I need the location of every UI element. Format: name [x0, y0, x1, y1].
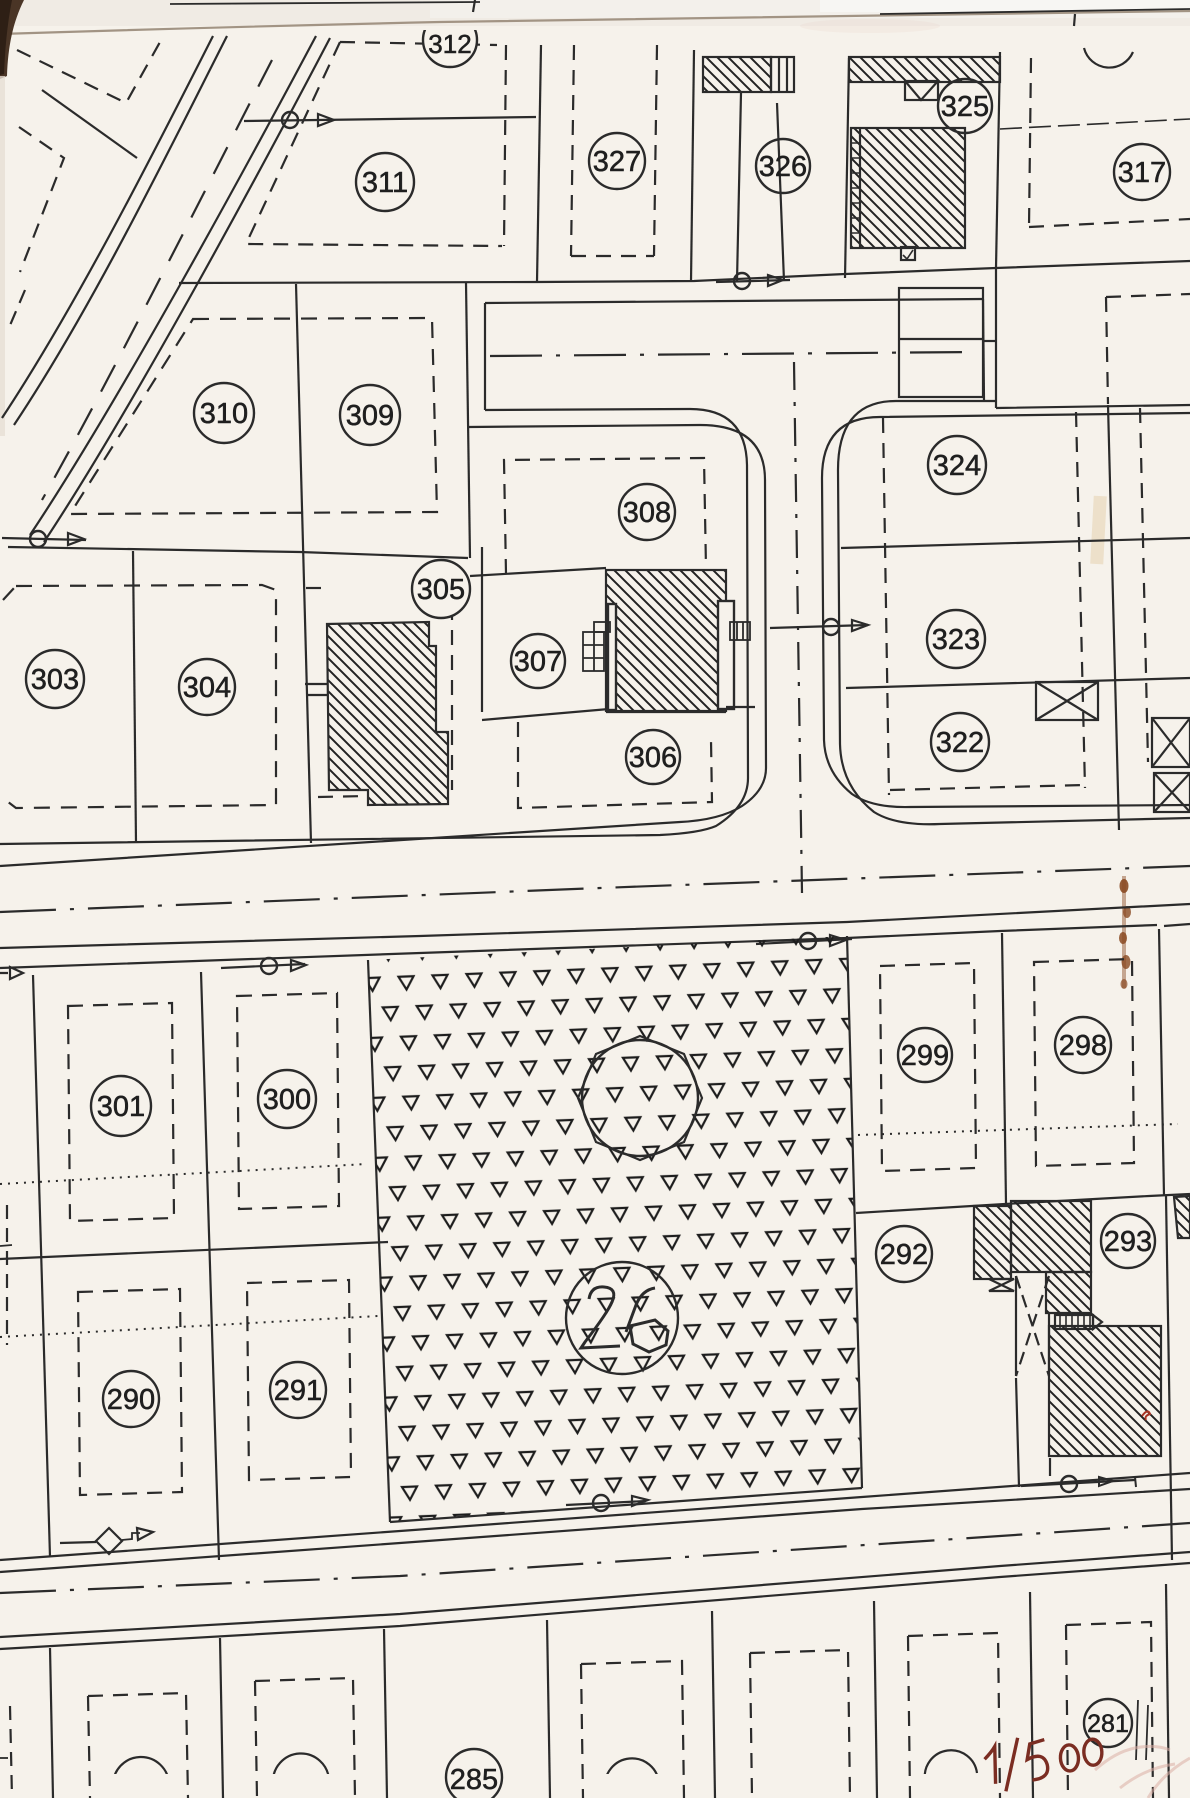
svg-text:308: 308 [623, 497, 671, 529]
svg-text:317: 317 [1118, 157, 1166, 189]
svg-text:325: 325 [941, 91, 989, 123]
svg-text:306: 306 [629, 742, 677, 774]
svg-text:292: 292 [880, 1239, 928, 1271]
svg-text:324: 324 [933, 450, 981, 482]
svg-text:298: 298 [1059, 1030, 1107, 1062]
svg-text:322: 322 [936, 727, 984, 759]
svg-text:311: 311 [362, 167, 408, 199]
svg-text:303: 303 [31, 664, 79, 696]
svg-text:327: 327 [593, 146, 641, 178]
svg-text:293: 293 [1104, 1226, 1152, 1258]
svg-text:326: 326 [759, 151, 807, 183]
svg-text:299: 299 [901, 1040, 949, 1072]
svg-text:281: 281 [1087, 1710, 1129, 1738]
svg-text:301: 301 [97, 1091, 145, 1123]
svg-text:310: 310 [200, 398, 248, 430]
svg-text:285: 285 [450, 1764, 498, 1796]
svg-text:300: 300 [263, 1084, 311, 1116]
svg-text:304: 304 [183, 672, 231, 704]
svg-text:290: 290 [107, 1384, 155, 1416]
svg-text:305: 305 [417, 574, 465, 606]
svg-text:323: 323 [932, 624, 980, 656]
svg-text:309: 309 [346, 400, 394, 432]
svg-text:291: 291 [274, 1375, 322, 1407]
svg-text:307: 307 [514, 646, 562, 678]
svg-text:312: 312 [428, 29, 471, 59]
